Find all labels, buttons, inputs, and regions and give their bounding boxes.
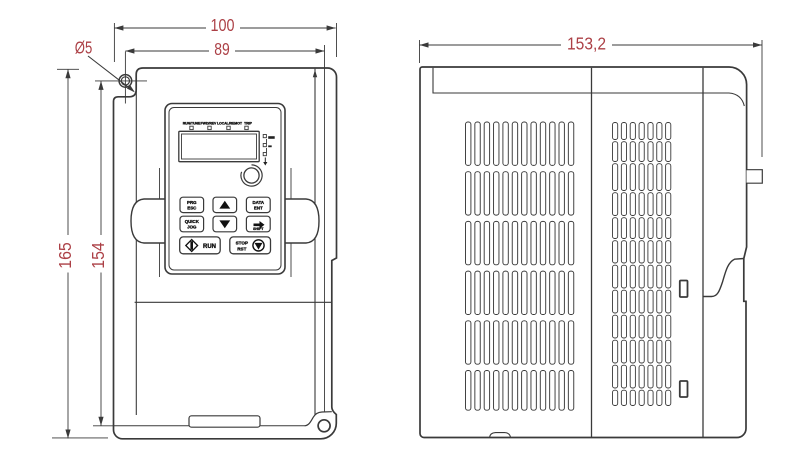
svg-text:FWD/REV: FWD/REV: [201, 122, 217, 126]
svg-text:TRIP: TRIP: [244, 122, 252, 126]
svg-text:SHIFT: SHIFT: [253, 227, 264, 231]
svg-text:PRG: PRG: [187, 200, 197, 205]
svg-text:ENT: ENT: [254, 206, 263, 211]
svg-text:100: 100: [211, 15, 235, 35]
svg-text:RUN: RUN: [203, 244, 216, 250]
svg-text:Ø5: Ø5: [75, 38, 93, 58]
svg-text:QUICK: QUICK: [185, 219, 200, 224]
svg-text:RST: RST: [237, 246, 246, 251]
svg-text:STOP: STOP: [236, 240, 248, 245]
svg-text:153,2: 153,2: [567, 33, 606, 53]
svg-text:165: 165: [55, 242, 75, 269]
svg-text:LOCAL/REMOT: LOCAL/REMOT: [217, 122, 243, 126]
svg-text:ESC: ESC: [187, 206, 197, 211]
svg-text:89: 89: [214, 39, 230, 59]
svg-text:RUN/TUNE: RUN/TUNE: [183, 122, 201, 126]
svg-text:JOG: JOG: [187, 225, 197, 230]
svg-text:DATA: DATA: [253, 200, 265, 205]
svg-text:154: 154: [88, 242, 108, 269]
